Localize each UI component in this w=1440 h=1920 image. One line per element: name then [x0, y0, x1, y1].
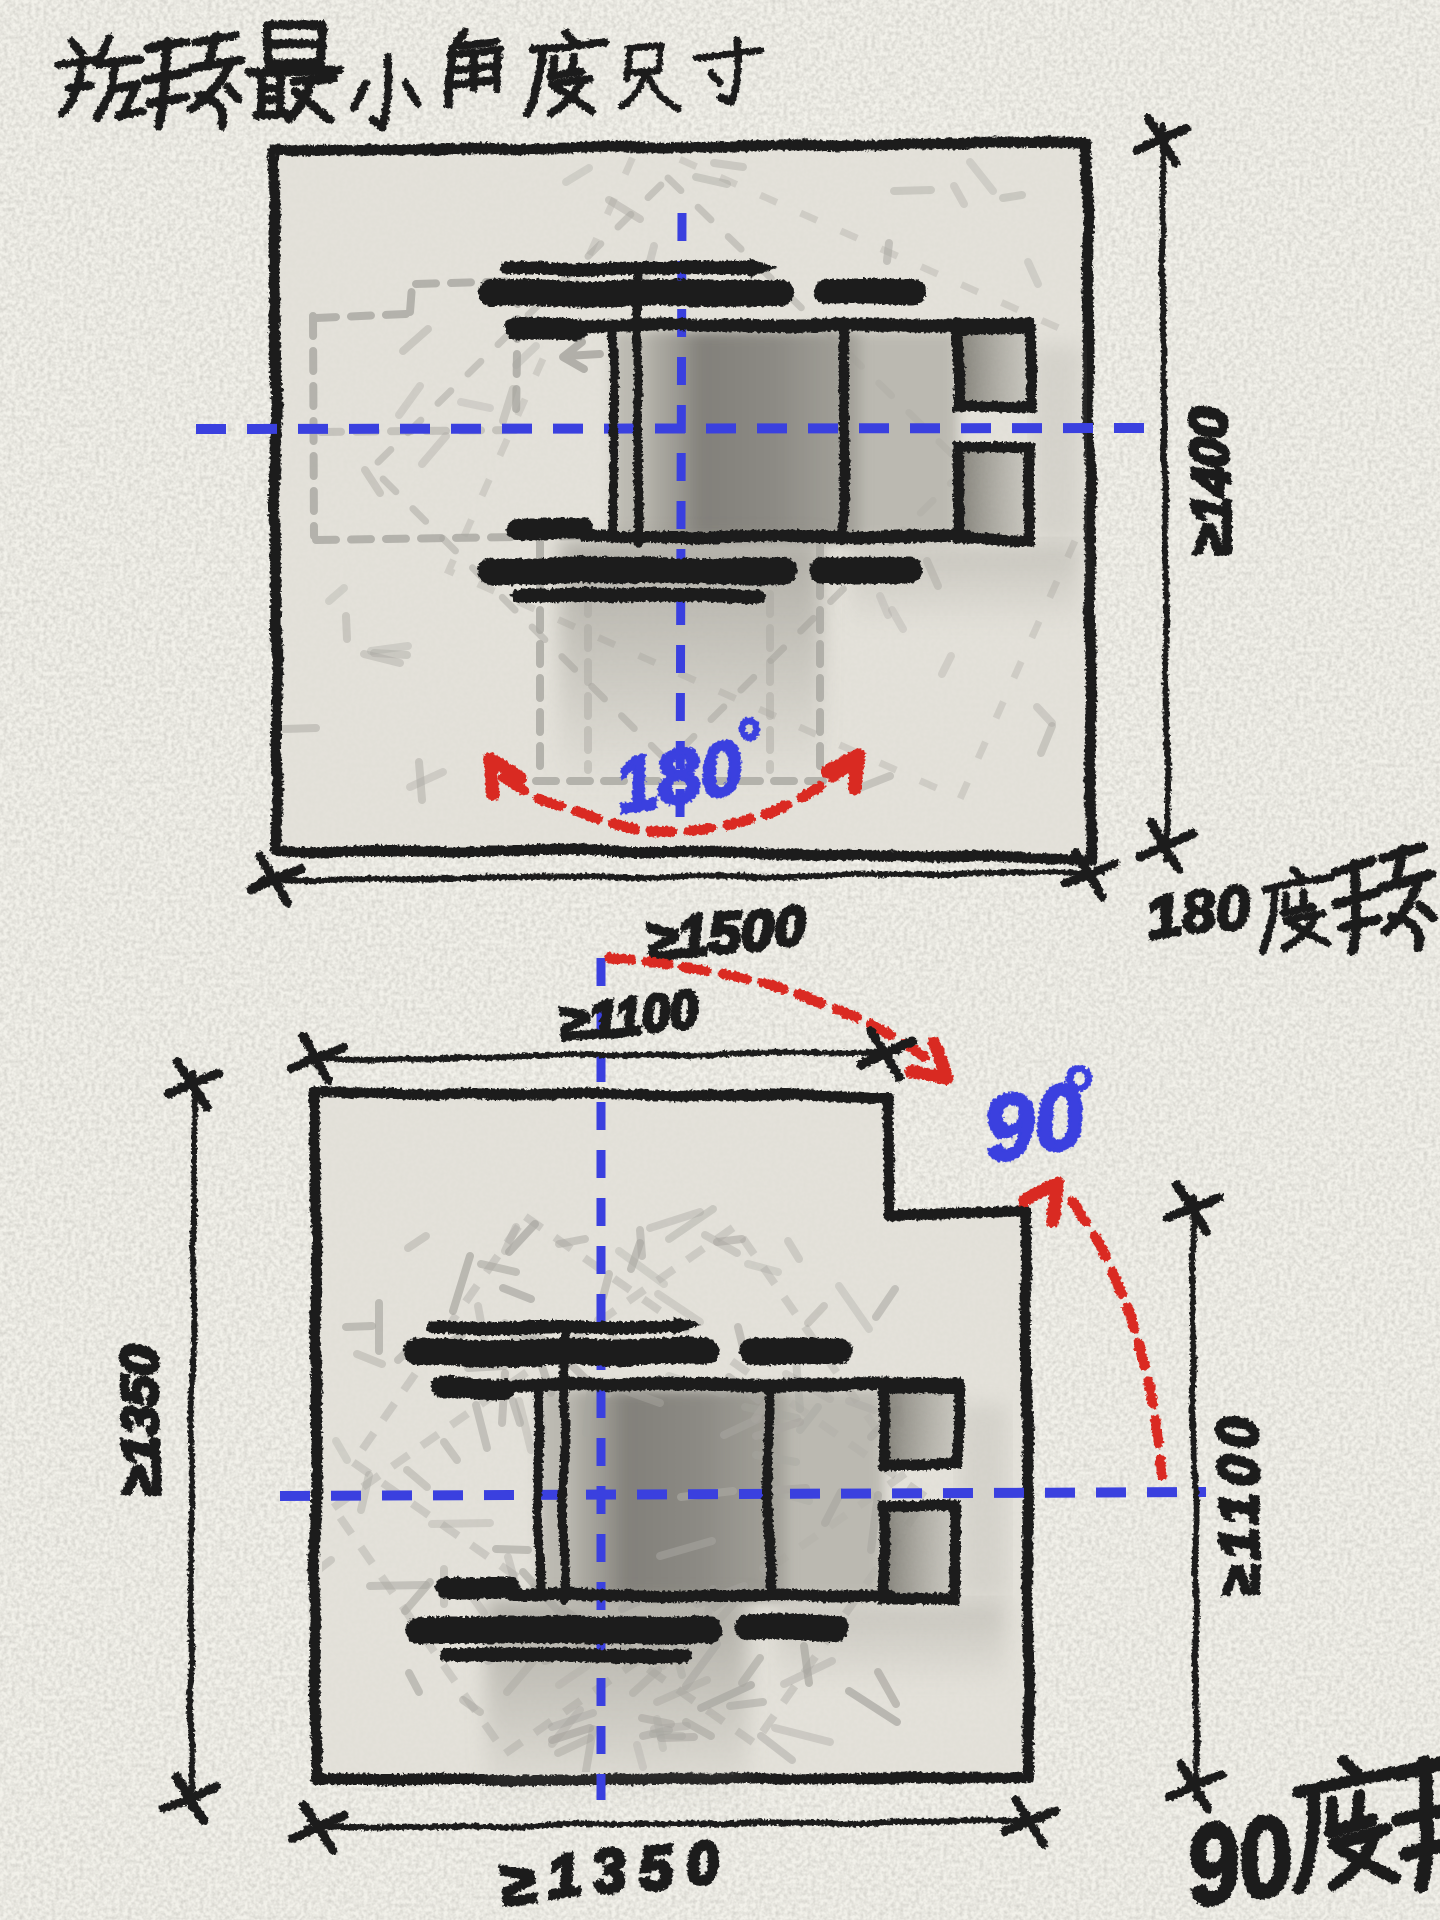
svg-text:90: 90	[974, 1064, 1093, 1182]
svg-text:90: 90	[1178, 1792, 1298, 1920]
svg-text:180: 180	[1142, 871, 1254, 954]
svg-text:≥1350: ≥1350	[110, 1346, 170, 1496]
svg-text:≥1400: ≥1400	[1180, 406, 1240, 556]
svg-text:≥1100: ≥1100	[1207, 1410, 1270, 1596]
